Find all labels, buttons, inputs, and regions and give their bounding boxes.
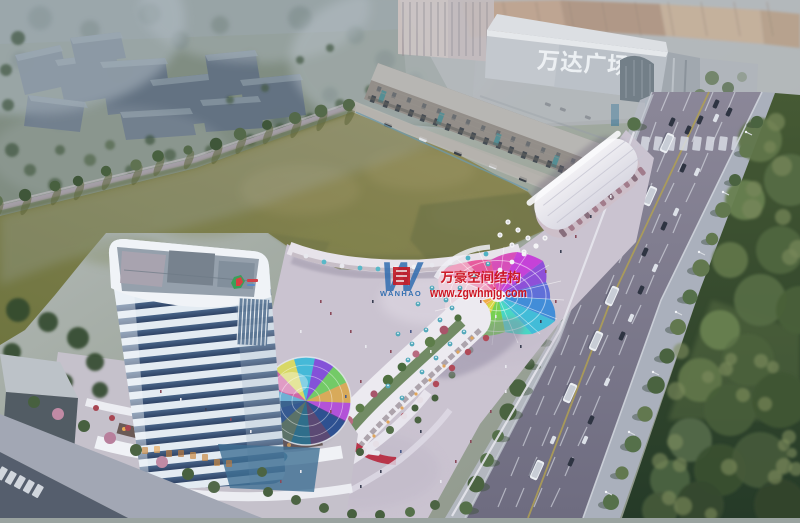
svg-text:www.zgwhmjg.com: www.zgwhmjg.com xyxy=(429,286,527,300)
svg-text:WANHAO: WANHAO xyxy=(380,289,422,298)
